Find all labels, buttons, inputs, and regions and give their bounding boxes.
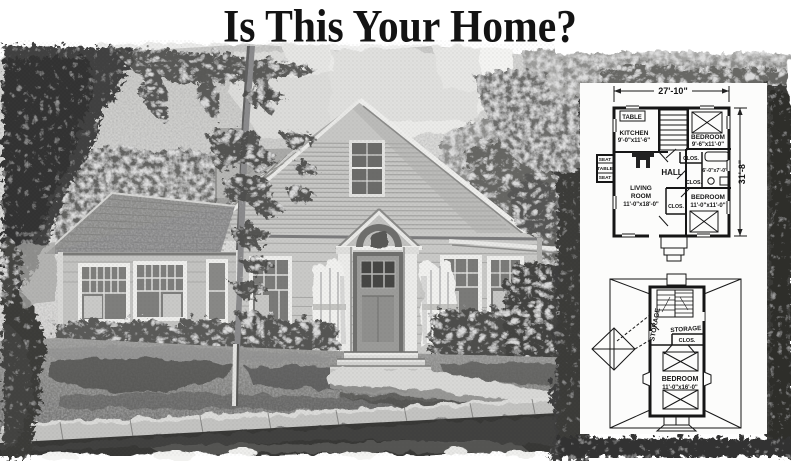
- svg-text:BEDROOM: BEDROOM: [691, 134, 725, 141]
- svg-text:KITCHEN: KITCHEN: [620, 130, 649, 137]
- svg-text:BEDROOM: BEDROOM: [662, 376, 699, 383]
- svg-text:BEDROOM: BEDROOM: [691, 194, 725, 201]
- svg-text:CLOS.: CLOS.: [683, 156, 699, 162]
- svg-text:27'-10": 27'-10": [658, 86, 687, 96]
- svg-text:SEAT: SEAT: [599, 175, 612, 181]
- svg-text:CLOS.: CLOS.: [668, 204, 684, 210]
- svg-text:TABLE: TABLE: [597, 166, 613, 172]
- svg-text:9'-0"x11'-6": 9'-0"x11'-6": [618, 138, 650, 144]
- svg-text:11'-0"x16'-0": 11'-0"x16'-0": [662, 385, 698, 391]
- svg-text:ROOM: ROOM: [631, 193, 651, 200]
- svg-text:LIVING: LIVING: [630, 185, 652, 192]
- svg-text:6'-0"x7'-0": 6'-0"x7'-0": [702, 168, 728, 174]
- svg-text:CLOS.: CLOS.: [679, 338, 696, 344]
- svg-text:SEAT: SEAT: [599, 157, 612, 163]
- svg-text:Is This Your Home?: Is This Your Home?: [223, 0, 577, 52]
- svg-text:HALL: HALL: [661, 168, 682, 177]
- svg-text:11'-0"x11'-0": 11'-0"x11'-0": [690, 203, 725, 209]
- svg-text:11'-0"x18'-0": 11'-0"x18'-0": [623, 202, 659, 208]
- svg-text:CLOS.: CLOS.: [686, 180, 702, 186]
- svg-text:9'-6"x11'-0": 9'-6"x11'-0": [692, 142, 724, 148]
- svg-text:TABLE: TABLE: [622, 115, 642, 121]
- svg-text:31'-8": 31'-8": [737, 160, 747, 184]
